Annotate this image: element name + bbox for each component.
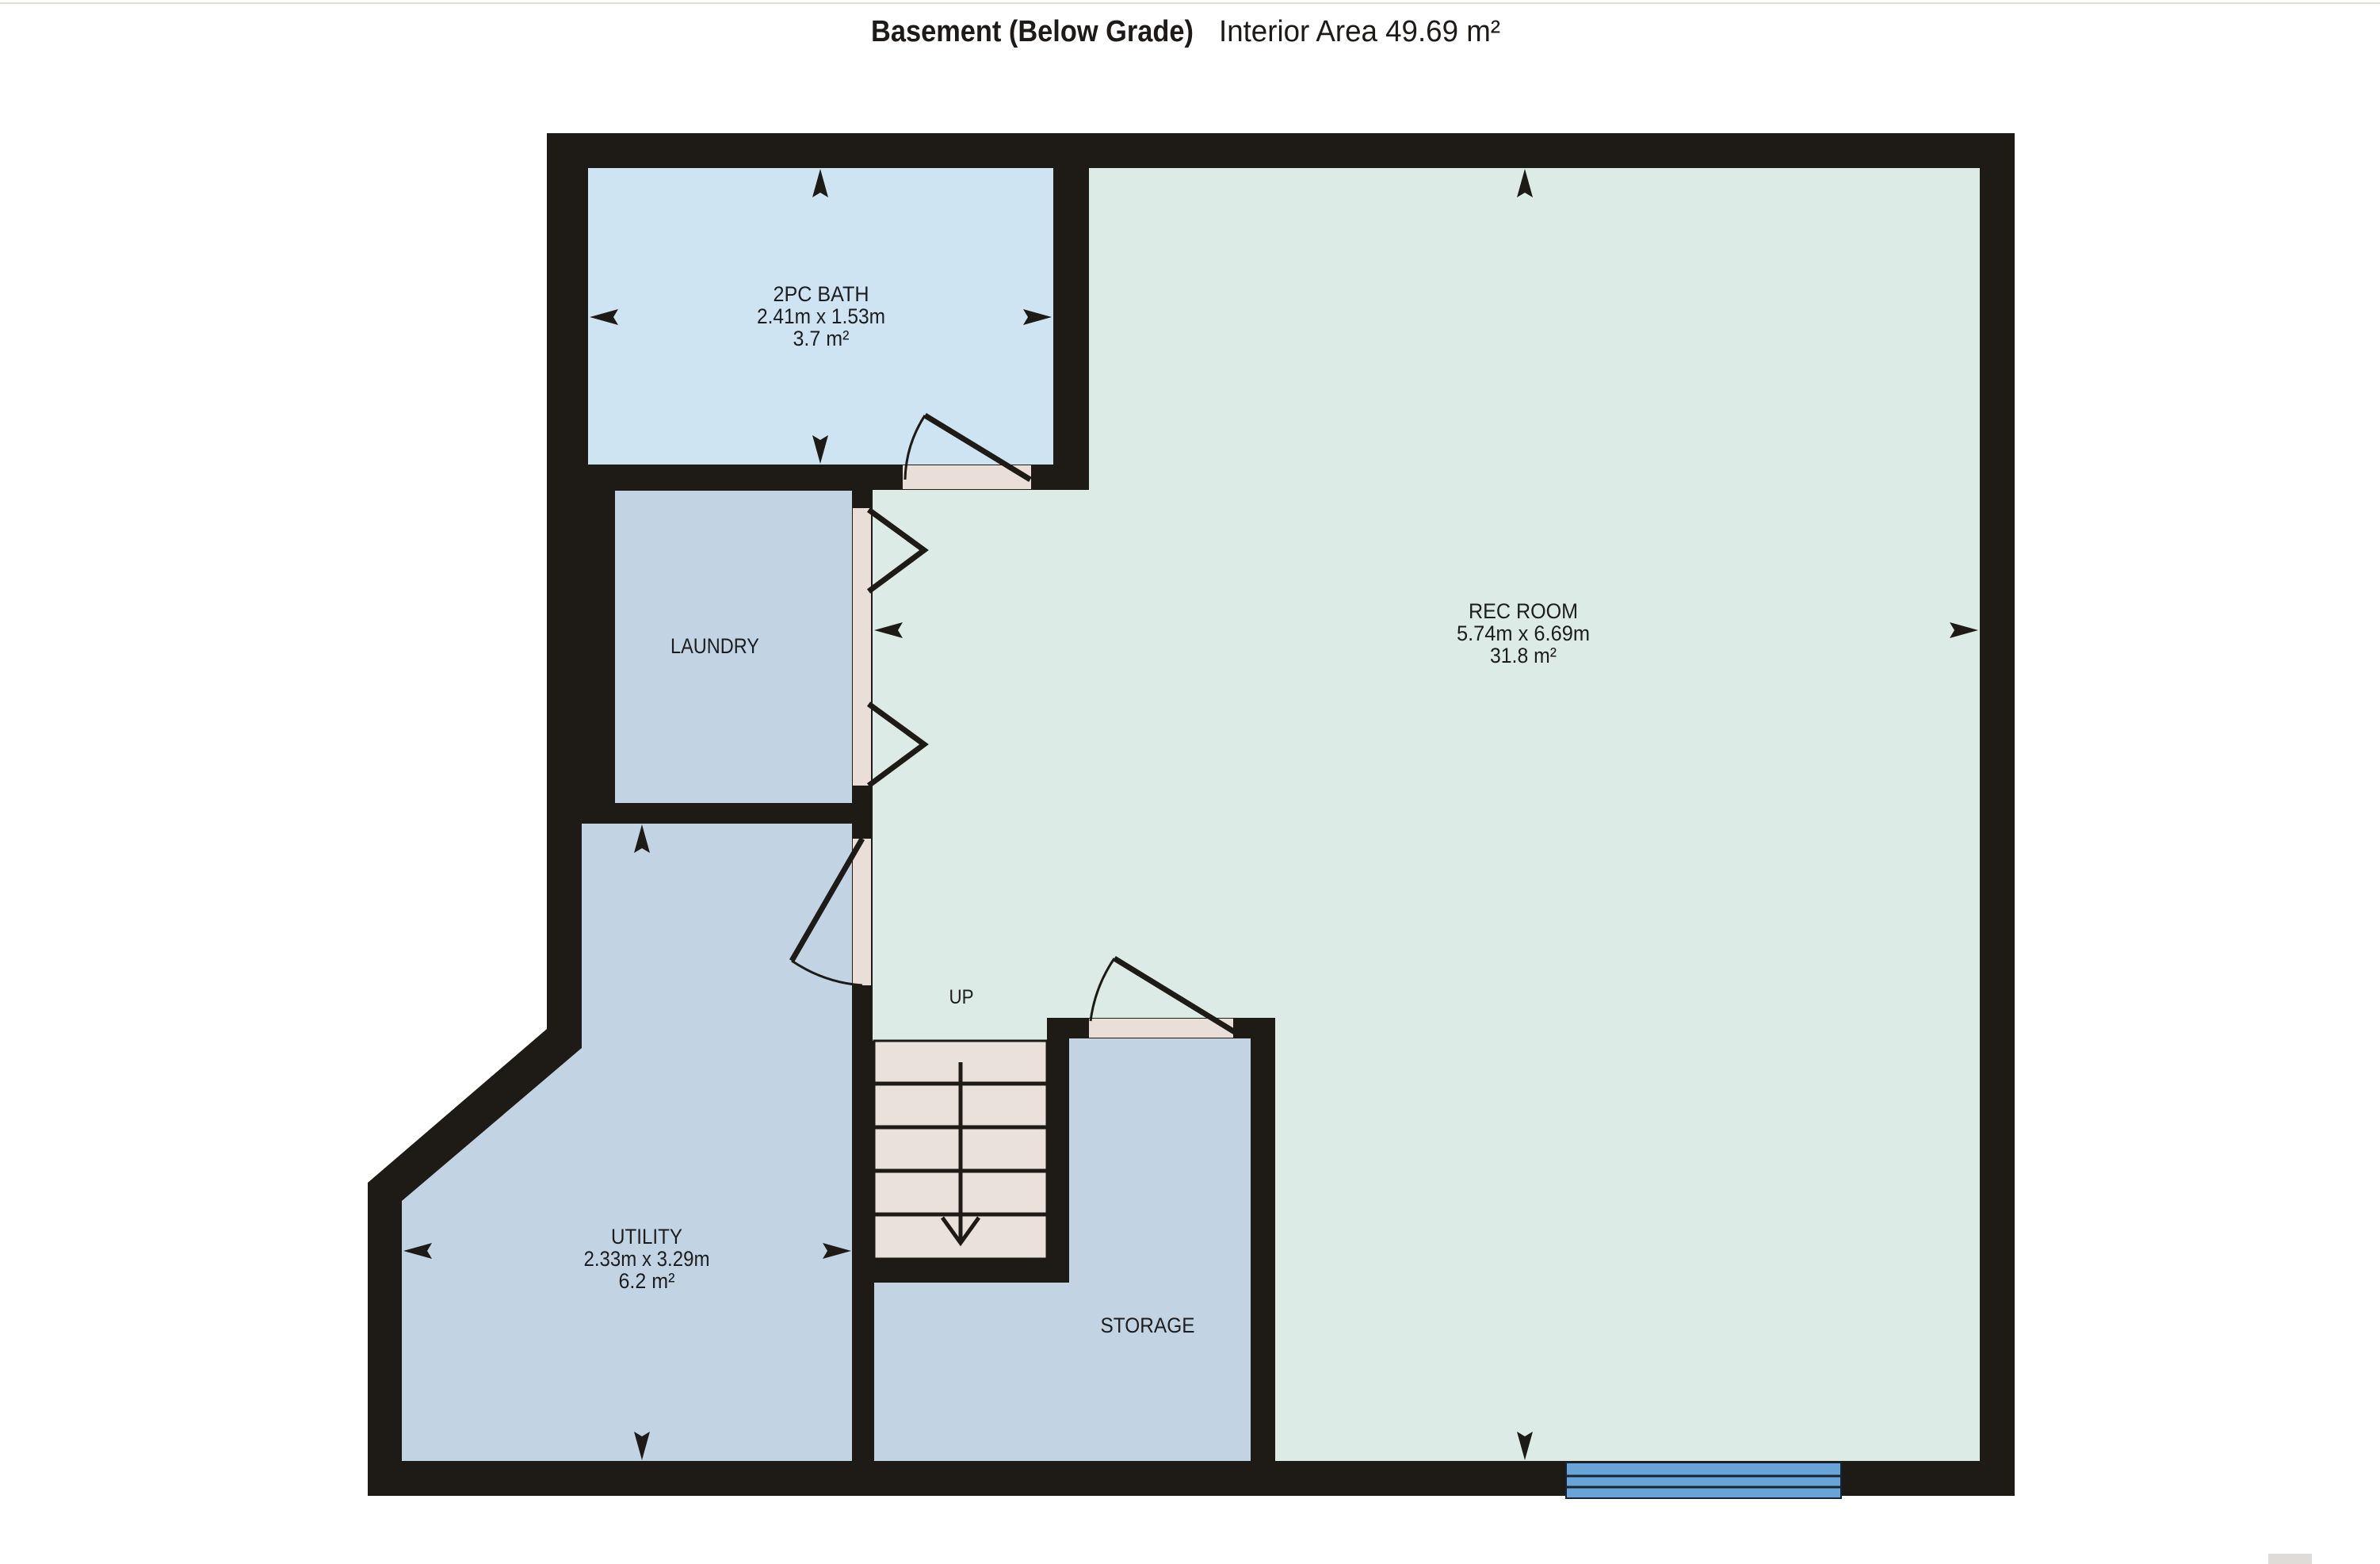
svg-text:STORAGE: STORAGE [1101, 1314, 1195, 1337]
svg-text:UTILITY: UTILITY [611, 1225, 682, 1249]
svg-text:Basement (Below Grade): Basement (Below Grade) [871, 15, 1194, 48]
svg-text:5.74m x 6.69m: 5.74m x 6.69m [1457, 621, 1590, 645]
svg-text:REC ROOM: REC ROOM [1469, 599, 1578, 623]
svg-text:LAUNDRY: LAUNDRY [670, 634, 759, 658]
svg-text:UP: UP [949, 986, 974, 1008]
svg-text:3.7 m²: 3.7 m² [793, 327, 850, 350]
svg-text:6.2 m²: 6.2 m² [619, 1269, 675, 1293]
svg-text:Interior Area 49.69 m²: Interior Area 49.69 m² [1219, 15, 1500, 48]
svg-text:2.41m x 1.53m: 2.41m x 1.53m [757, 304, 885, 328]
svg-text:31.8 m²: 31.8 m² [1490, 644, 1557, 667]
svg-text:2PC BATH: 2PC BATH [774, 282, 869, 306]
svg-text:2.33m x 3.29m: 2.33m x 3.29m [584, 1247, 710, 1271]
